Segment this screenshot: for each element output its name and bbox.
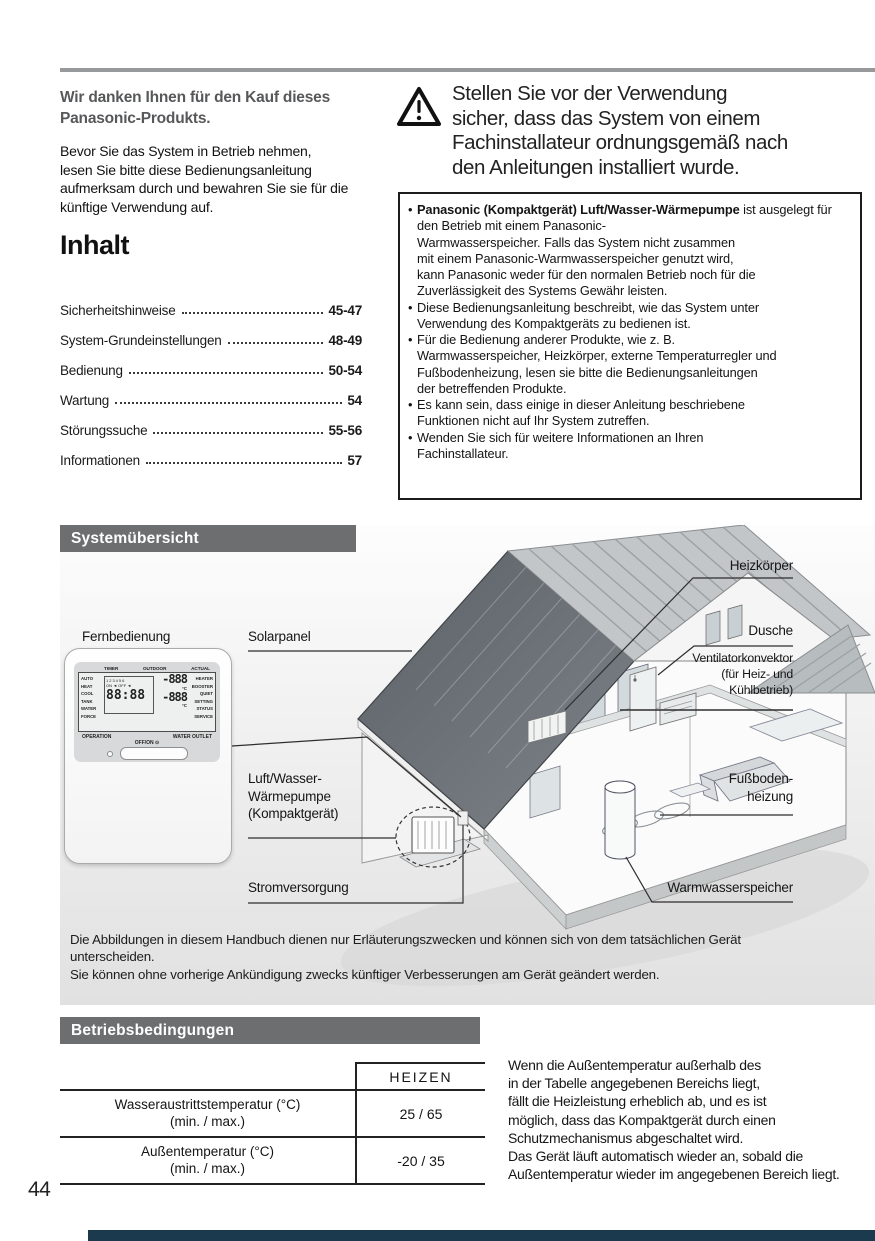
- panel-captions: OPERATION WATER OUTLET: [78, 732, 216, 740]
- note-bold-lead: Panasonic (Kompaktgerät) Luft/Wasser-Wär…: [417, 202, 740, 217]
- table-row-wasseraustritt: Wasseraustrittstemperatur (°C) (min. / m…: [60, 1091, 485, 1136]
- row-label-sub: (min. / max.): [60, 1114, 355, 1131]
- toc-row-wartung: Wartung 54: [60, 380, 362, 410]
- intro-body: Bevor Sie das System in Betrieb nehmen, …: [60, 142, 380, 216]
- led-indicator: [107, 751, 113, 757]
- section-header-betriebsbedingungen: Betriebsbedingungen: [60, 1017, 480, 1044]
- lcd-timer-area: 123456 ON ◄ OFF ◄ 88:88: [103, 673, 155, 731]
- label-fernbedienung: Fernbedienung: [82, 628, 170, 646]
- water-outlet-label: WATER OUTLET: [173, 734, 212, 740]
- toc-title: Inhalt: [60, 230, 129, 261]
- note-item: • Panasonic (Kompaktgerät) Luft/Wasser-W…: [408, 202, 852, 300]
- toc-pages: 45-47: [328, 303, 362, 320]
- power-button-row: [78, 747, 216, 760]
- table-rule: [60, 1183, 485, 1185]
- remote-display-panel: TIMER OUTDOOR ACTUAL AUTO HEAT COOL TANK…: [74, 662, 220, 762]
- table-of-contents: Sicherheitshinweise 45-47 System-Grundei…: [60, 290, 362, 470]
- row-label-sub: (min. / max.): [60, 1161, 355, 1178]
- off-on-button[interactable]: [120, 747, 188, 760]
- note-item: • Für die Bedienung anderer Produkte, wi…: [408, 332, 852, 397]
- lcd-timer-label: TIMER: [104, 666, 118, 671]
- row-label-main: Außentemperatur (°C): [60, 1144, 355, 1161]
- bullet: •: [408, 202, 417, 300]
- toc-row-grundeinstellungen: System-Grundeinstellungen 48-49: [60, 320, 362, 350]
- lcd-status-labels: HEATER BOOSTER QUIET SETTING STATUS SERV…: [187, 673, 215, 731]
- warning-text: Stellen Sie vor der Verwendung sicher, d…: [452, 82, 864, 180]
- temperature-readouts: -888 °C -888 °C: [155, 673, 187, 731]
- toc-row-sicherheitshinweise: Sicherheitshinweise 45-47: [60, 290, 362, 320]
- toc-row-bedienung: Bedienung 50-54: [60, 350, 362, 380]
- gable-window: [706, 611, 720, 645]
- label-heizkoerper: Heizkörper: [730, 557, 793, 575]
- lcd-temps: -888 °C -888 °C HEATER BOOSTER QUIET SET…: [155, 673, 215, 731]
- table-header-row: HEIZEN: [60, 1062, 485, 1089]
- timer-clock: 88:88: [106, 689, 152, 703]
- toc-label: Bedienung: [60, 363, 123, 380]
- bullet: •: [408, 300, 417, 333]
- label-solarpanel: Solarpanel: [248, 628, 311, 646]
- toc-leader-dots: [153, 432, 323, 434]
- page-number: 44: [28, 1178, 50, 1202]
- label-luft-wasser-waermepumpe: Luft/Wasser- Wärmepumpe (Kompaktgerät): [248, 770, 398, 823]
- label-ventilatorkonvektor: Ventilatorkonvektor (für Heiz- und Kühlb…: [623, 651, 793, 699]
- toc-pages: 57: [347, 453, 362, 470]
- manual-page: { "colors": { "section_bar": "#6d6e70", …: [0, 0, 875, 1241]
- toc-leader-dots: [182, 312, 324, 314]
- toc-row-stoerungssuche: Störungssuche 55-56: [60, 410, 362, 440]
- connection-box: [458, 811, 468, 825]
- lcd-outdoor-label: OUTDOOR: [143, 666, 166, 671]
- toc-pages: 50-54: [328, 363, 362, 380]
- note-text: Wenden Sie sich für weitere Informatione…: [417, 430, 852, 463]
- row-value: -20 / 35: [355, 1138, 485, 1183]
- table-row-aussentemperatur: Außentemperatur (°C) (min. / max.) -20 /…: [60, 1138, 485, 1183]
- operating-conditions-text: Wenn die Außentemperatur außerhalb des i…: [508, 1056, 870, 1183]
- toc-pages: 54: [347, 393, 362, 410]
- note-text: Für die Bedienung anderer Produkte, wie …: [417, 332, 852, 397]
- window: [530, 766, 560, 818]
- bullet: •: [408, 397, 417, 430]
- toc-leader-dots: [228, 342, 324, 344]
- toc-row-informationen: Informationen 57: [60, 440, 362, 470]
- label-stromversorgung: Stromversorgung: [248, 879, 349, 897]
- notes-box: • Panasonic (Kompaktgerät) Luft/Wasser-W…: [398, 192, 862, 500]
- toc-label: Störungssuche: [60, 423, 147, 440]
- lcd-mode-labels: AUTO HEAT COOL TANK WATER FORCE: [79, 673, 103, 731]
- empty-header-cell: [60, 1062, 355, 1089]
- actual-temp: -888: [155, 691, 187, 704]
- row-label-main: Wasseraustrittstemperatur (°C): [60, 1097, 355, 1114]
- label-dusche: Dusche: [748, 622, 793, 640]
- note-text: Panasonic (Kompaktgerät) Luft/Wasser-Wär…: [417, 202, 852, 300]
- toc-pages: 48-49: [328, 333, 362, 350]
- toc-leader-dots: [115, 402, 342, 404]
- note-text: Diese Bedienungsanleitung beschreibt, wi…: [417, 300, 852, 333]
- note-item: • Diese Bedienungsanleitung beschreibt, …: [408, 300, 852, 333]
- heizen-header-cell: HEIZEN: [355, 1062, 485, 1089]
- table-body: Wasseraustrittstemperatur (°C) (min. / m…: [60, 1091, 485, 1185]
- lcd-top-labels: TIMER OUTDOOR ACTUAL: [78, 665, 216, 672]
- footer-bar: [88, 1230, 875, 1241]
- toc-label: Sicherheitshinweise: [60, 303, 176, 320]
- bullet: •: [408, 332, 417, 397]
- hot-water-tank: [605, 781, 635, 859]
- toc-label: Informationen: [60, 453, 140, 470]
- operation-label: OPERATION: [82, 734, 111, 740]
- label-warmwasserspeicher: Warmwasserspeicher: [667, 879, 793, 897]
- note-item: • Es kann sein, dass einige in dieser An…: [408, 397, 852, 430]
- top-rule: [60, 68, 875, 72]
- row-label: Wasseraustrittstemperatur (°C) (min. / m…: [60, 1091, 355, 1136]
- timer-box: 123456 ON ◄ OFF ◄ 88:88: [104, 676, 154, 714]
- remote-lcd: AUTO HEAT COOL TANK WATER FORCE 123456 O…: [78, 672, 216, 732]
- label-fussbodenheizung: Fußboden- heizung: [653, 770, 793, 805]
- bullet: •: [408, 430, 417, 463]
- toc-leader-dots: [129, 372, 324, 374]
- overview-disclaimer: Die Abbildungen in diesem Handbuch diene…: [70, 931, 840, 983]
- operating-conditions-table: HEIZEN Wasseraustrittstemperatur (°C) (m…: [60, 1062, 485, 1185]
- note-item: • Wenden Sie sich für weitere Informatio…: [408, 430, 852, 463]
- power-label: OFF/ON ⊙: [78, 740, 216, 746]
- toc-pages: 55-56: [328, 423, 362, 440]
- actual-temp-unit: °C: [155, 703, 187, 708]
- note-text: Es kann sein, dass einige in dieser Anle…: [417, 397, 852, 430]
- outdoor-temp: -888: [155, 673, 187, 686]
- toc-leader-dots: [146, 462, 342, 464]
- toc-label: System-Grundeinstellungen: [60, 333, 222, 350]
- row-label: Außentemperatur (°C) (min. / max.): [60, 1138, 355, 1183]
- remote-control: TIMER OUTDOOR ACTUAL AUTO HEAT COOL TANK…: [64, 648, 232, 864]
- intro-heading: Wir danken Ihnen für den Kauf dieses Pan…: [60, 88, 370, 130]
- row-value: 25 / 65: [355, 1091, 485, 1136]
- warning-triangle-icon: [396, 86, 442, 128]
- gable-window: [728, 605, 742, 639]
- lcd-actual-label: ACTUAL: [191, 666, 210, 671]
- toc-label: Wartung: [60, 393, 109, 410]
